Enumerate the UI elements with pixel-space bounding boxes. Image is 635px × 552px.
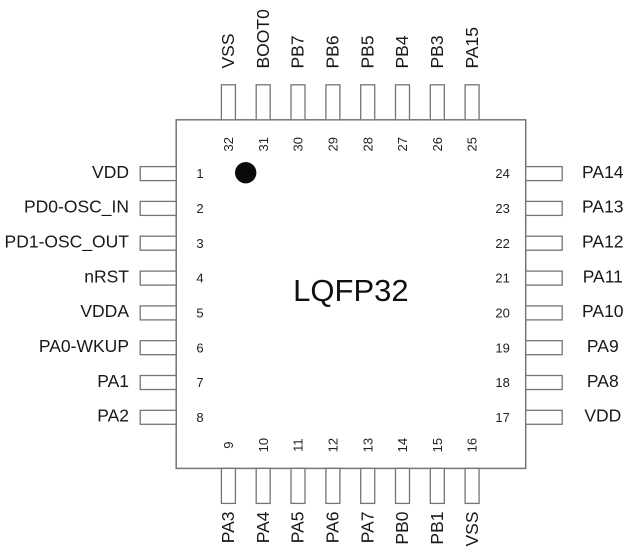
svg-text:7: 7 (196, 375, 203, 390)
svg-text:32: 32 (221, 137, 236, 151)
svg-text:13: 13 (360, 438, 375, 452)
svg-text:20: 20 (495, 306, 509, 321)
svg-text:5: 5 (196, 306, 203, 321)
svg-text:3: 3 (196, 236, 203, 251)
svg-text:PA1: PA1 (97, 371, 129, 391)
svg-text:PA6: PA6 (323, 512, 343, 544)
svg-text:26: 26 (430, 137, 445, 151)
svg-text:9: 9 (221, 441, 236, 448)
svg-text:PB5: PB5 (357, 35, 377, 68)
svg-text:PA14: PA14 (582, 162, 624, 182)
svg-text:VDDA: VDDA (80, 301, 129, 321)
svg-text:1: 1 (196, 166, 203, 181)
svg-text:PD0-OSC_IN: PD0-OSC_IN (24, 197, 129, 218)
svg-text:VSS: VSS (462, 512, 482, 547)
svg-text:12: 12 (326, 438, 341, 452)
svg-text:PA7: PA7 (357, 512, 377, 544)
svg-text:4: 4 (196, 271, 203, 286)
svg-text:22: 22 (495, 236, 509, 251)
svg-text:10: 10 (256, 438, 271, 452)
svg-text:PB0: PB0 (392, 511, 412, 544)
svg-text:27: 27 (395, 137, 410, 151)
svg-text:18: 18 (495, 375, 509, 390)
svg-text:VDD: VDD (92, 162, 129, 182)
svg-text:23: 23 (495, 201, 509, 216)
svg-text:11: 11 (291, 438, 306, 452)
svg-text:25: 25 (465, 137, 480, 151)
svg-text:PA4: PA4 (253, 511, 273, 543)
svg-text:PA15: PA15 (462, 27, 482, 69)
svg-text:PA10: PA10 (582, 301, 624, 321)
svg-text:15: 15 (430, 438, 445, 452)
svg-text:PA9: PA9 (587, 336, 619, 356)
svg-text:PA0-WKUP: PA0-WKUP (39, 336, 129, 356)
svg-text:PB1: PB1 (427, 512, 447, 545)
svg-text:14: 14 (395, 438, 410, 452)
svg-text:24: 24 (495, 166, 509, 181)
svg-text:PA8: PA8 (587, 371, 619, 391)
svg-text:29: 29 (326, 137, 341, 151)
svg-text:21: 21 (495, 271, 509, 286)
svg-text:LQFP32: LQFP32 (293, 273, 408, 308)
svg-text:2: 2 (196, 201, 203, 216)
svg-text:PB6: PB6 (323, 35, 343, 68)
svg-text:PA5: PA5 (288, 512, 308, 544)
svg-text:nRST: nRST (84, 266, 129, 286)
svg-text:31: 31 (256, 137, 271, 151)
svg-text:PA13: PA13 (582, 197, 624, 217)
svg-text:6: 6 (196, 340, 203, 355)
svg-text:PA3: PA3 (218, 512, 238, 544)
svg-text:PA2: PA2 (97, 406, 129, 426)
svg-text:PB7: PB7 (288, 35, 308, 68)
svg-text:PA11: PA11 (583, 266, 623, 286)
svg-text:PA12: PA12 (582, 232, 624, 252)
svg-text:VDD: VDD (584, 406, 621, 426)
svg-text:VSS: VSS (218, 33, 238, 68)
svg-text:28: 28 (360, 137, 375, 151)
svg-text:8: 8 (196, 410, 203, 425)
svg-text:PB3: PB3 (427, 35, 447, 68)
svg-text:16: 16 (465, 438, 480, 452)
svg-text:17: 17 (495, 410, 509, 425)
svg-text:BOOT0: BOOT0 (253, 9, 273, 69)
svg-text:19: 19 (495, 340, 509, 355)
svg-text:PB4: PB4 (392, 35, 412, 68)
svg-text:PD1-OSC_OUT: PD1-OSC_OUT (5, 232, 130, 253)
svg-text:30: 30 (291, 137, 306, 151)
